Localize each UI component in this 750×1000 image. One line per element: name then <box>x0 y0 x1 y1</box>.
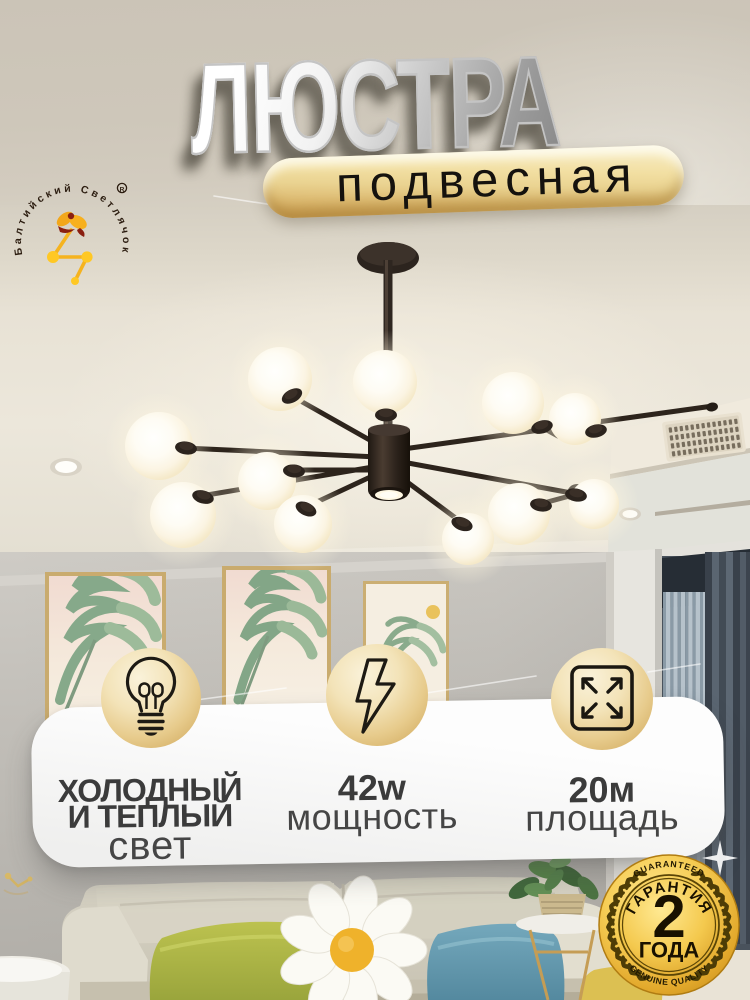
svg-text:R: R <box>120 186 125 193</box>
svg-text:ГОДА: ГОДА <box>639 938 700 963</box>
